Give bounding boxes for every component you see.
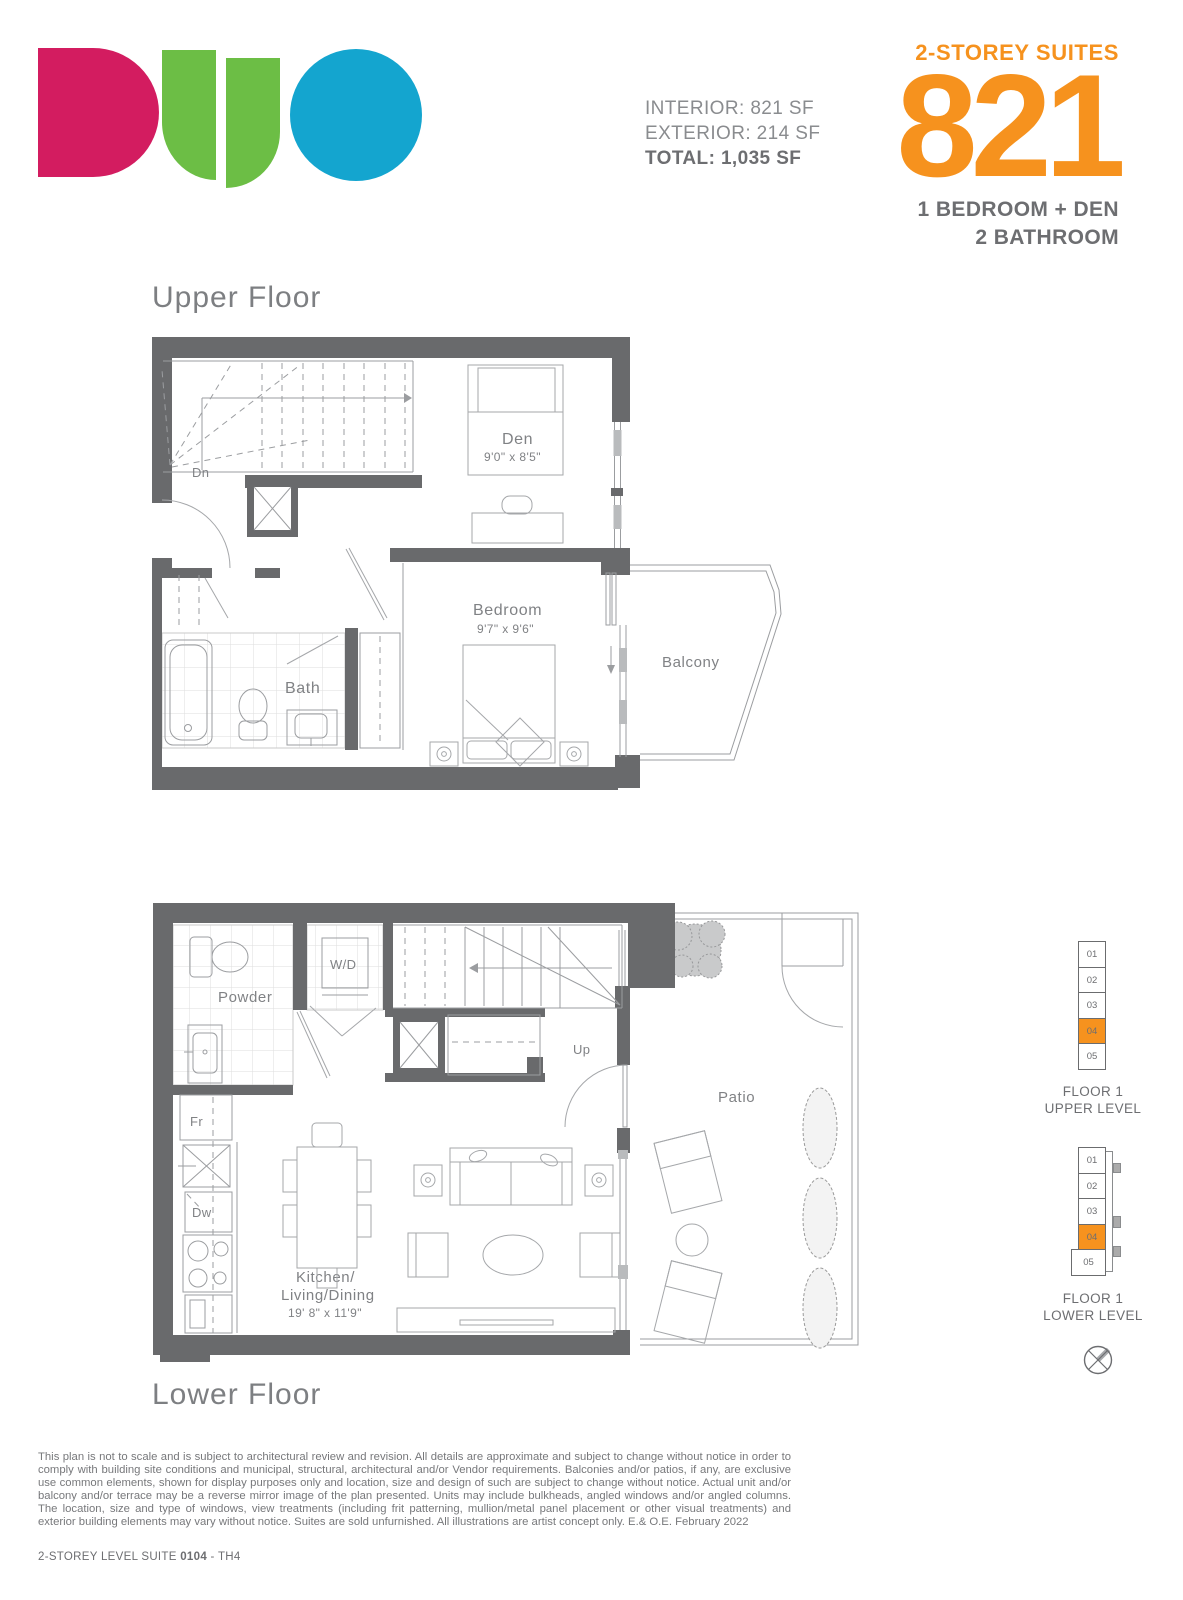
wd-label: W/D: [330, 957, 356, 972]
upper-shaft: [247, 480, 298, 537]
logo-letter-u-left: [162, 50, 216, 180]
up-label: Up: [573, 1042, 590, 1057]
dn-label: Dn: [192, 465, 209, 480]
balcony-door: [606, 573, 610, 625]
keyplan-upper-unit-05: 05: [1078, 1043, 1106, 1070]
entry-door: [565, 1065, 627, 1127]
kitchen-label-1: Kitchen/: [296, 1269, 355, 1286]
suite-number: 821: [896, 72, 1119, 180]
powder-label: Powder: [218, 989, 272, 1006]
keyplan-upper: 01 02 03 04 05 FLOOR 1 UPPER LEVEL: [1020, 941, 1183, 1121]
base-cabinet: [185, 1295, 232, 1333]
keyplan-upper-unit-04: 04: [1078, 1018, 1106, 1045]
den-chair: [502, 496, 532, 514]
suite-header: 2-STOREY SUITES 821 1 BEDROOM + DEN 2 BA…: [896, 40, 1119, 252]
dishwasher-label: Dw: [192, 1205, 212, 1220]
lower-shaft: [393, 1015, 540, 1075]
coffee-table: [483, 1235, 543, 1275]
plan-prefix: 2-STOREY LEVEL SUITE: [38, 1551, 180, 1563]
upper-floor-plan: Dn Bath: [148, 312, 788, 792]
bedroom-label: Bedroom: [473, 602, 542, 619]
upper-floor-title: Upper Floor: [152, 281, 321, 315]
den-label: Den: [502, 431, 533, 448]
balcony-stub-1: [1113, 1163, 1121, 1173]
floorplan-page: INTERIOR: 821 SF EXTERIOR: 214 SF TOTAL:…: [0, 0, 1183, 1600]
keyplan-upper-unit-03: 03: [1078, 992, 1106, 1019]
den: Den 9'0" x 8'5": [346, 365, 563, 620]
kitchen-label-2: Living/Dining: [281, 1287, 375, 1304]
balcony: Balcony: [630, 565, 781, 760]
compass-icon: [1080, 1343, 1116, 1379]
keyplan-upper-caption: FLOOR 1 UPPER LEVEL: [1038, 1083, 1148, 1117]
total-area: TOTAL: 1,035 SF: [645, 146, 820, 171]
lower-floor-plan: Patio: [148, 872, 878, 1372]
keyplan-upper-unit-01: 01: [1078, 941, 1106, 968]
area-stats: INTERIOR: 821 SF EXTERIOR: 214 SF TOTAL:…: [645, 96, 820, 171]
keyplan-lower-caption: FLOOR 1 LOWER LEVEL: [1038, 1290, 1148, 1324]
den-dims: 9'0" x 8'5": [484, 450, 541, 464]
keyplan-lower-corridor: [1105, 1151, 1113, 1272]
patio-lounge-chair-1: [654, 1131, 722, 1213]
plan-suffix: - TH4: [207, 1551, 241, 1563]
logo-letter-u-right: [226, 58, 280, 188]
interior-area: INTERIOR: 821 SF: [645, 96, 820, 121]
kitchen-dims: 19' 8" x 11'9": [288, 1306, 362, 1320]
keyplan-lower-unit-05: 05: [1071, 1249, 1106, 1276]
bath-label: Bath: [285, 680, 320, 697]
disclaimer-text: This plan is not to scale and is subject…: [38, 1451, 791, 1529]
exterior-area: EXTERIOR: 214 SF: [645, 121, 820, 146]
dining-set: [283, 1123, 371, 1288]
config-line1: 1 BEDROOM + DEN: [896, 196, 1119, 224]
balcony-stub-3: [1113, 1246, 1121, 1257]
nightstand-right: [560, 742, 588, 766]
keyplan-upper-unit-02: 02: [1078, 967, 1106, 994]
logo-letter-d: [38, 48, 159, 177]
upper-windows: [606, 422, 627, 757]
kitchen: Fr Dw Kitchen/ Living/Dining 19' 8" x 11…: [178, 1095, 375, 1333]
keyplan-lower-unit-03: 03: [1078, 1198, 1106, 1225]
bedroom: Bedroom 9'7" x 9'6": [430, 602, 588, 766]
armchair-right: [580, 1233, 620, 1277]
entry-closet: [448, 1015, 540, 1075]
logo-letter-o: [290, 49, 422, 181]
patio-gate: [782, 966, 843, 1027]
patio-lounge-chair-2: [654, 1261, 722, 1343]
bedroom-dims: 9'7" x 9'6": [477, 622, 534, 636]
keyplan-lower-unit-04: 04: [1078, 1224, 1106, 1251]
bedroom-closet: [360, 563, 403, 750]
balcony-label: Balcony: [662, 654, 720, 671]
patio-label: Patio: [718, 1089, 755, 1106]
lower-windows: [618, 1150, 628, 1330]
suite-config: 1 BEDROOM + DEN 2 BATHROOM: [896, 196, 1119, 252]
armchair-left: [408, 1233, 448, 1277]
side-table-left: [414, 1165, 442, 1196]
keyplan-lower-unit-02: 02: [1078, 1173, 1106, 1200]
side-table-right: [585, 1165, 613, 1196]
nightstand-left: [430, 742, 458, 766]
balcony-stub-2: [1113, 1216, 1121, 1228]
patio-table: [676, 1224, 708, 1256]
patio-shrubs: [803, 1088, 837, 1348]
stair-arrow: [404, 393, 412, 403]
upper-stairs: Dn: [162, 361, 413, 480]
suite-code: 0104: [180, 1551, 207, 1563]
config-line2: 2 BATHROOM: [896, 224, 1119, 252]
den-desk: [472, 513, 563, 543]
living-room: [397, 1148, 620, 1332]
keyplan-lower: 01 02 03 04 05 FLOOR 1 LOWER LEVEL: [1020, 1145, 1183, 1335]
duo-logo: [0, 0, 440, 210]
fridge: [180, 1095, 232, 1140]
plan-reference-line: 2-STOREY LEVEL SUITE 0104 - TH4: [38, 1551, 241, 1563]
lower-floor-title: Lower Floor: [152, 1378, 321, 1412]
stair-arrow: [469, 963, 478, 973]
keyplan-lower-unit-01: 01: [1078, 1147, 1106, 1174]
dining-table: [297, 1147, 357, 1268]
fridge-label: Fr: [190, 1114, 203, 1129]
